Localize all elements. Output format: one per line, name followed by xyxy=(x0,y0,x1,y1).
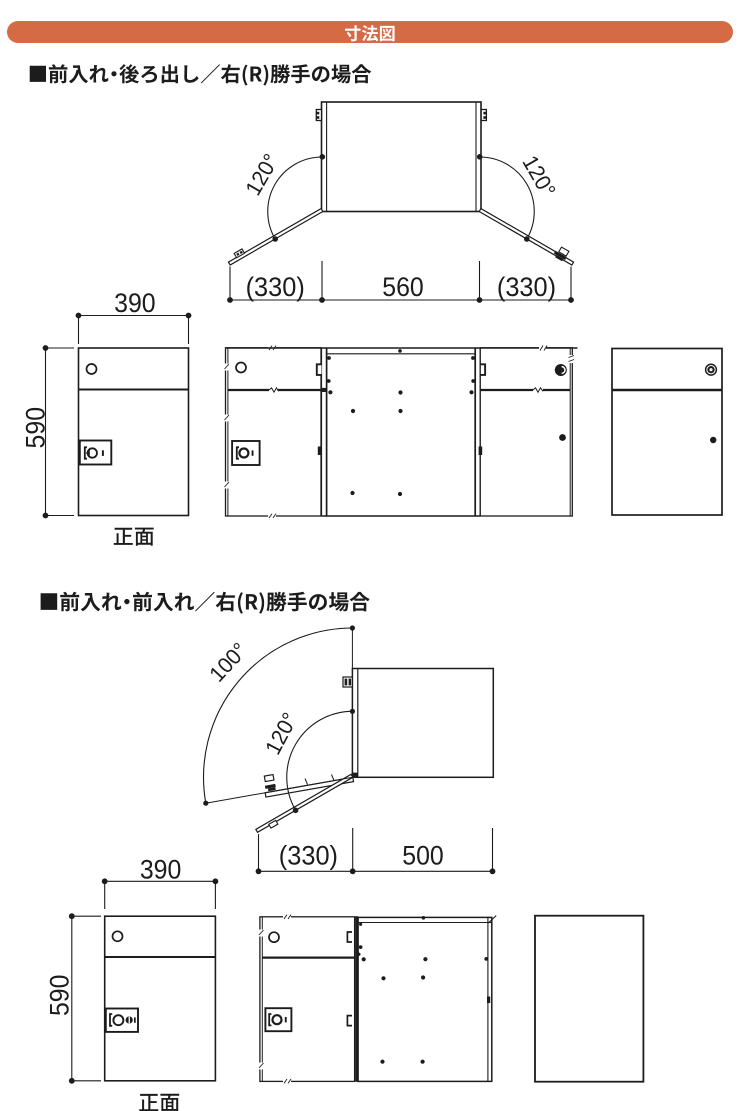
svg-text:390: 390 xyxy=(140,854,182,884)
svg-text:120°: 120° xyxy=(240,149,283,199)
svg-text:560: 560 xyxy=(382,272,424,302)
svg-text:590: 590 xyxy=(45,975,75,1017)
svg-text:(330): (330) xyxy=(497,272,556,302)
svg-text:390: 390 xyxy=(114,288,156,318)
svg-text:(330): (330) xyxy=(246,272,305,302)
svg-text:590: 590 xyxy=(21,407,51,449)
svg-text:(330): (330) xyxy=(279,841,338,871)
svg-text:500: 500 xyxy=(402,841,444,871)
svg-text:100°: 100° xyxy=(204,638,252,687)
svg-text:120°: 120° xyxy=(260,708,302,758)
svg-text:120°: 120° xyxy=(517,151,560,201)
